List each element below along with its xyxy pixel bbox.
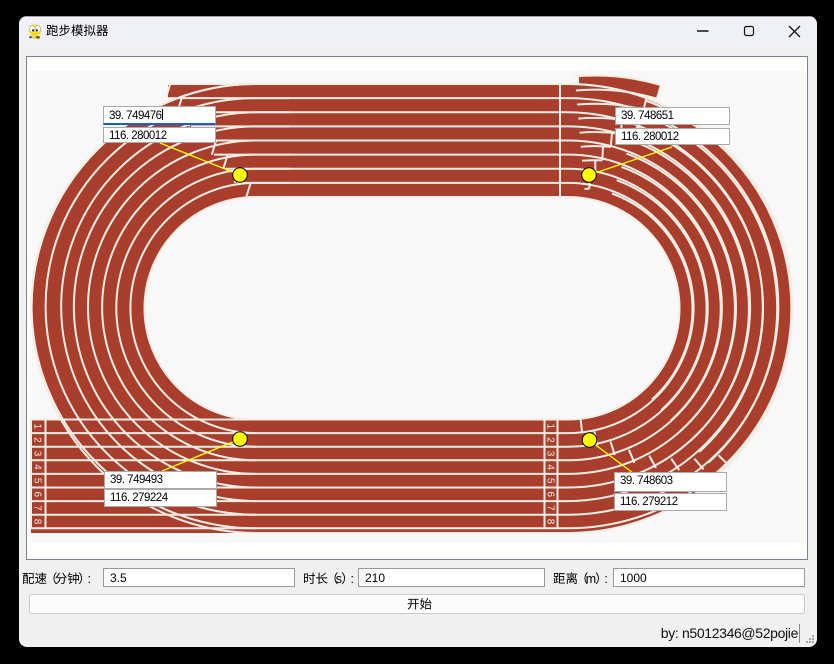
svg-text:1: 1 xyxy=(32,424,43,430)
svg-text:4: 4 xyxy=(32,464,43,470)
svg-text::: : xyxy=(88,572,91,586)
svg-text:2: 2 xyxy=(544,437,555,443)
svg-text::: : xyxy=(351,572,354,586)
svg-text:4: 4 xyxy=(544,464,555,470)
svg-text:3: 3 xyxy=(32,451,43,457)
svg-text:6: 6 xyxy=(32,492,43,498)
svg-text:7: 7 xyxy=(32,505,43,511)
svg-text:8: 8 xyxy=(544,519,555,525)
svg-text:6: 6 xyxy=(544,492,555,498)
svg-text:8: 8 xyxy=(32,519,43,525)
svg-text:7: 7 xyxy=(544,505,555,511)
svg-text:m: m xyxy=(586,572,596,586)
svg-text:3: 3 xyxy=(544,451,555,457)
svg-text:2: 2 xyxy=(32,437,43,443)
svg-text:5: 5 xyxy=(544,478,555,484)
svg-text:5: 5 xyxy=(32,478,43,484)
svg-text:1: 1 xyxy=(544,424,555,430)
svg-text:s: s xyxy=(336,572,342,586)
svg-text::: : xyxy=(604,572,607,586)
